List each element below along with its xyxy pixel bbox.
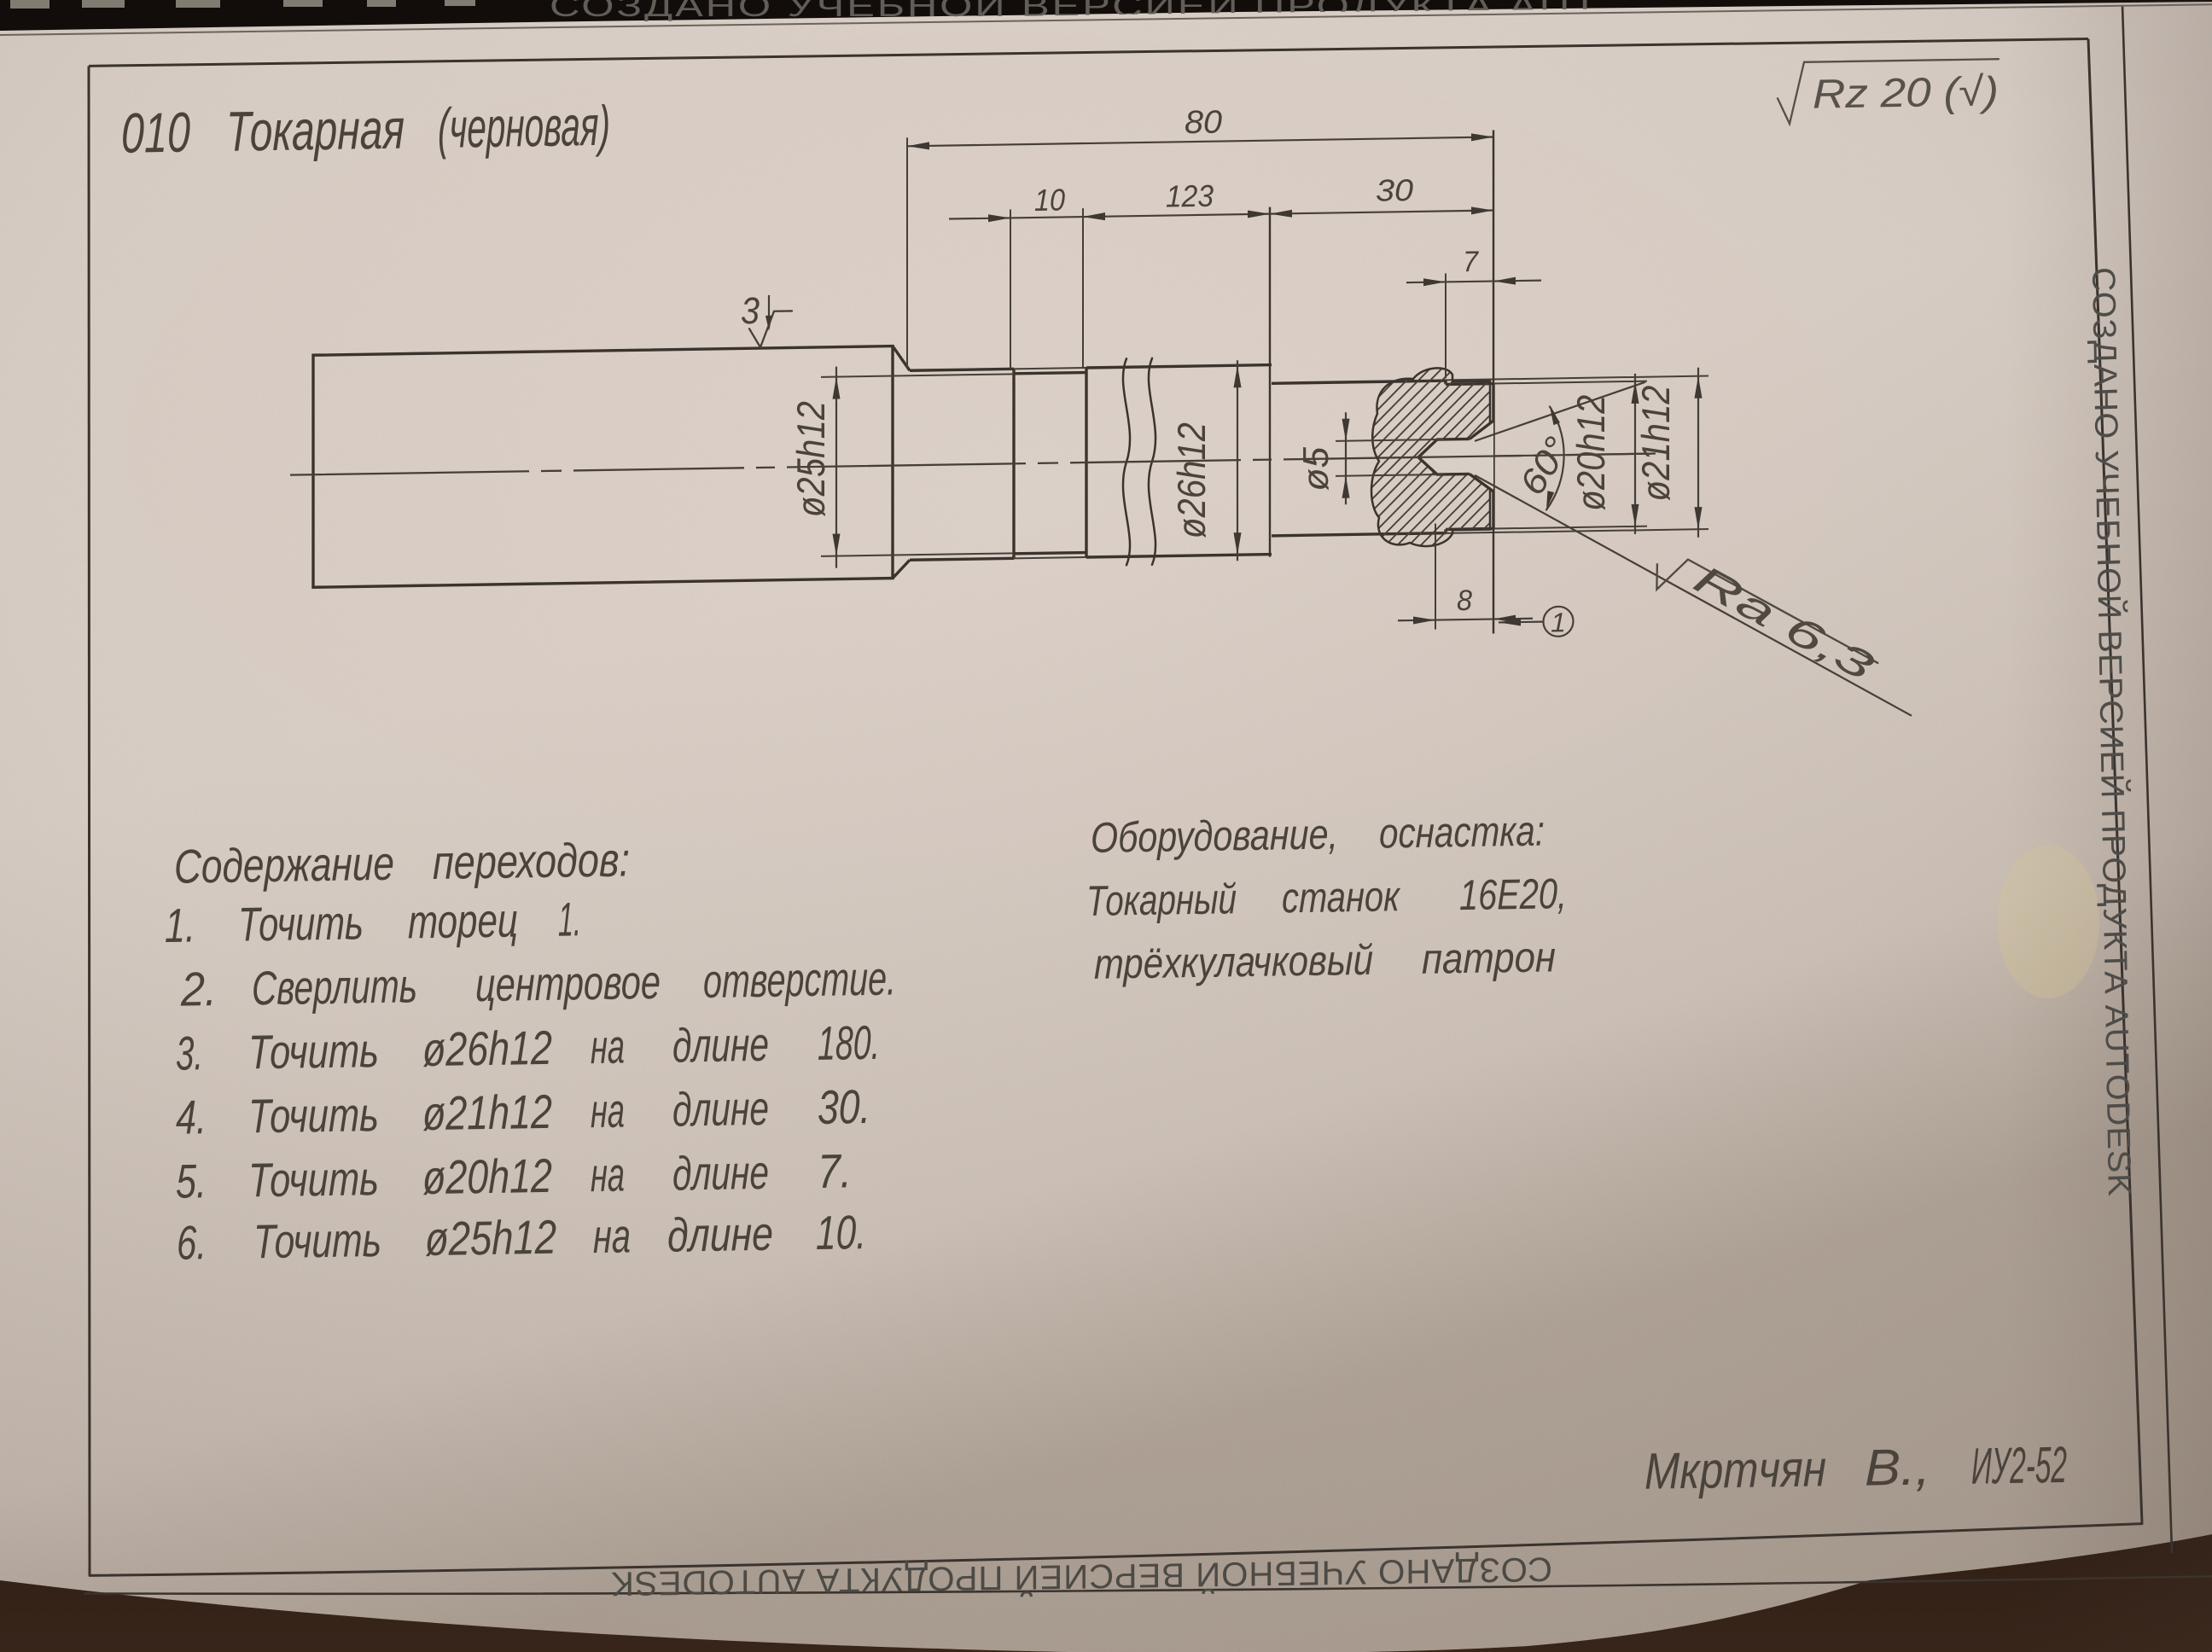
svg-text:оснастка:: оснастка: — [1379, 807, 1545, 858]
svg-text:Токарная: Токарная — [226, 97, 405, 163]
svg-text:ø25h12: ø25h12 — [425, 1210, 556, 1265]
svg-text:4.: 4. — [176, 1090, 207, 1144]
svg-text:80: 80 — [1185, 105, 1222, 142]
svg-text:длине: длине — [672, 1145, 769, 1201]
svg-text:1: 1 — [1551, 607, 1566, 637]
svg-text:ø25h12: ø25h12 — [789, 401, 833, 518]
svg-text:Rz 20 (√): Rz 20 (√) — [1813, 69, 1999, 117]
svg-text:180.: 180. — [818, 1015, 880, 1070]
svg-text:патрон: патрон — [1422, 933, 1556, 982]
svg-text:5.: 5. — [176, 1154, 207, 1208]
svg-text:010: 010 — [121, 100, 190, 164]
svg-text:Содержание: Содержание — [174, 836, 394, 893]
svg-text:8: 8 — [1457, 585, 1472, 617]
svg-text:ø26h12: ø26h12 — [1169, 422, 1214, 539]
svg-text:центровое: центровое — [475, 955, 661, 1011]
svg-text:на: на — [593, 1208, 631, 1263]
svg-text:на: на — [591, 1020, 625, 1074]
svg-text:длине: длине — [672, 1081, 769, 1137]
svg-text:ø21h12: ø21h12 — [422, 1085, 552, 1140]
svg-text:ø26h12: ø26h12 — [422, 1021, 552, 1076]
svg-text:Токарный: Токарный — [1086, 875, 1237, 925]
svg-text:7.: 7. — [818, 1143, 852, 1198]
svg-text:1.: 1. — [165, 898, 195, 952]
svg-text:10.: 10. — [816, 1205, 866, 1259]
svg-text:Мкртчян: Мкртчян — [1644, 1440, 1826, 1499]
svg-text:Точить: Точить — [248, 1151, 379, 1207]
svg-text:10: 10 — [1034, 182, 1065, 218]
svg-text:1.: 1. — [558, 892, 581, 945]
svg-text:3.: 3. — [176, 1026, 203, 1079]
svg-text:отверстие.: отверстие. — [703, 951, 896, 1009]
svg-text:ИУ2-52: ИУ2-52 — [1971, 1436, 2067, 1495]
svg-text:6.: 6. — [177, 1215, 207, 1270]
svg-text:2.: 2. — [180, 962, 217, 1016]
svg-text:3: 3 — [741, 290, 760, 332]
svg-text:Сверлить: Сверлить — [252, 958, 417, 1015]
svg-text:30: 30 — [1376, 172, 1413, 208]
svg-text:переходов:: переходов: — [433, 832, 630, 889]
svg-text:длине: длине — [667, 1207, 773, 1262]
svg-text:станок: станок — [1282, 872, 1401, 922]
svg-text:ø20h12: ø20h12 — [422, 1149, 552, 1204]
svg-text:торец: торец — [408, 893, 518, 948]
svg-text:Точить: Точить — [238, 895, 364, 951]
svg-text:123: 123 — [1166, 178, 1214, 214]
svg-text:трёхкулачковый: трёхкулачковый — [1094, 936, 1373, 988]
svg-text:(черновая): (черновая) — [438, 94, 610, 160]
svg-text:на: на — [591, 1084, 625, 1138]
svg-text:Оборудование,: Оборудование, — [1091, 810, 1338, 862]
svg-text:30.: 30. — [818, 1079, 870, 1134]
svg-text:16Е20,: 16Е20, — [1459, 870, 1567, 919]
svg-text:Точить: Точить — [248, 1023, 379, 1079]
svg-text:ø21h12: ø21h12 — [1633, 385, 1678, 502]
svg-text:ø5: ø5 — [1295, 446, 1336, 492]
svg-text:Точить: Точить — [253, 1213, 381, 1268]
svg-text:Точить: Точить — [248, 1087, 379, 1143]
svg-text:на: на — [591, 1148, 625, 1202]
svg-text:длине: длине — [672, 1017, 769, 1073]
svg-text:В.,: В., — [1865, 1438, 1930, 1496]
svg-text:7: 7 — [1463, 246, 1479, 278]
